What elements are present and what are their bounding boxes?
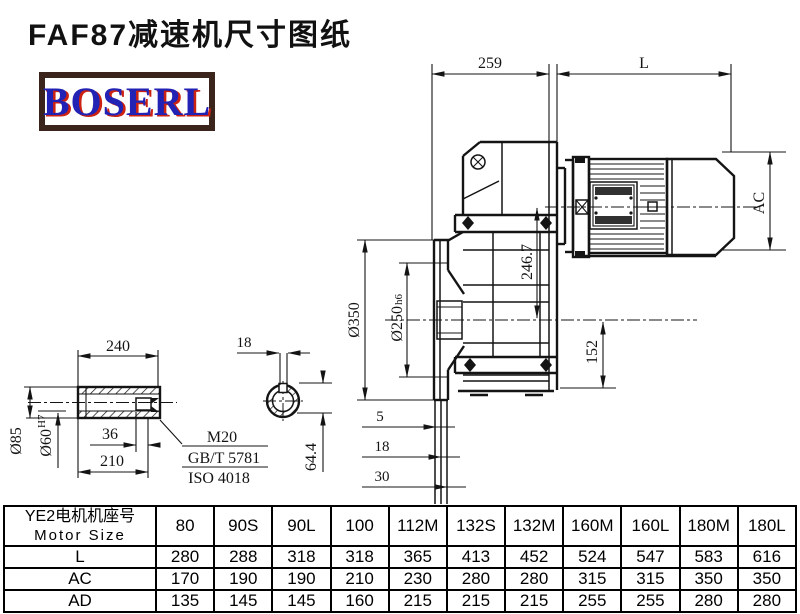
cell: 215 (505, 590, 563, 612)
dim-30: 30 (375, 469, 390, 485)
cell: 547 (621, 546, 679, 568)
cell: 145 (272, 590, 330, 612)
cell: 280 (680, 590, 738, 612)
cell: 190 (214, 568, 272, 590)
motor-size-table: YE2电机机座号 Motor Size 80 90S 90L 100 112M … (3, 505, 797, 613)
col-132M: 132M (505, 506, 563, 546)
cell: 350 (738, 568, 796, 590)
col-100: 100 (331, 506, 389, 546)
dim-18-offset: 18 (375, 439, 390, 455)
cell: 255 (563, 590, 621, 612)
label-GBT-5781: GB/T 5781 (188, 450, 260, 467)
cell: 210 (331, 568, 389, 590)
cell: 365 (389, 546, 447, 568)
col-90L: 90L (272, 506, 330, 546)
cell: 280 (738, 590, 796, 612)
gearbox-housing (455, 142, 557, 395)
dim-350: Ø350 (346, 302, 363, 338)
cell: 350 (680, 568, 738, 590)
cell: 170 (156, 568, 214, 590)
table-header-row: YE2电机机座号 Motor Size 80 90S 90L 100 112M … (4, 506, 796, 546)
col-132S: 132S (447, 506, 505, 546)
output-flange (434, 232, 464, 504)
dim-246-7: 246.7 (519, 244, 536, 280)
bolt-diamond-icon (540, 358, 552, 372)
cell: 616 (738, 546, 796, 568)
dim-85: Ø85 (8, 427, 25, 455)
col-160L: 160L (621, 506, 679, 546)
svg-text:h6: h6 (393, 294, 405, 306)
bolt-diamond-icon (464, 358, 476, 372)
col-112M: 112M (389, 506, 447, 546)
cell: 288 (214, 546, 272, 568)
cell: 280 (156, 546, 214, 568)
cell: 524 (563, 546, 621, 568)
row-label-AC: AC (4, 568, 156, 590)
table-header-motor-size: YE2电机机座号 Motor Size (4, 506, 156, 546)
dim-AC: AC (751, 192, 768, 214)
svg-text:Ø250: Ø250 (389, 306, 406, 342)
dimension-lines (30, 74, 770, 487)
dim-259: 259 (478, 55, 502, 72)
dim-210: 210 (100, 453, 124, 470)
col-180M: 180M (680, 506, 738, 546)
svg-text:H7: H7 (36, 414, 48, 428)
table-row-L: L 280 288 318 318 365 413 452 524 547 58… (4, 546, 796, 568)
col-180L: 180L (738, 506, 796, 546)
dim-240: 240 (106, 338, 130, 355)
dim-L: L (639, 55, 649, 72)
dim-18-keyway: 18 (237, 335, 252, 351)
motor-nameplate (590, 182, 637, 229)
header-en: Motor Size (5, 527, 155, 544)
label-M20: M20 (207, 429, 237, 446)
bolt-diamond-icon (540, 216, 552, 230)
cell: 318 (272, 546, 330, 568)
cell: 190 (272, 568, 330, 590)
cell: 315 (563, 568, 621, 590)
cell: 413 (447, 546, 505, 568)
col-80: 80 (156, 506, 214, 546)
cell: 452 (505, 546, 563, 568)
dim-5: 5 (376, 409, 384, 425)
cell: 280 (505, 568, 563, 590)
cell: 215 (447, 590, 505, 612)
shaft-cross-section (267, 384, 299, 418)
cell: 315 (621, 568, 679, 590)
col-160M: 160M (563, 506, 621, 546)
cell: 255 (621, 590, 679, 612)
cell: 318 (331, 546, 389, 568)
header-cn: YE2电机机座号 (5, 508, 155, 526)
drawing-page: FAF87减速机尺寸图纸 BOSERL (0, 0, 800, 614)
svg-text:Ø60: Ø60 (38, 429, 55, 457)
cell: 280 (447, 568, 505, 590)
dim-64-4: 64.4 (303, 443, 320, 471)
dim-250h6: Ø250 h6 (389, 294, 406, 342)
cell: 135 (156, 590, 214, 612)
row-label-L: L (4, 546, 156, 568)
col-90S: 90S (214, 506, 272, 546)
table-row-AD: AD 135 145 145 160 215 215 215 255 255 2… (4, 590, 796, 612)
dim-152: 152 (584, 340, 601, 364)
cell: 583 (680, 546, 738, 568)
label-ISO-4018: ISO 4018 (188, 470, 250, 487)
cell: 145 (214, 590, 272, 612)
cell: 230 (389, 568, 447, 590)
cell: 215 (389, 590, 447, 612)
row-label-AD: AD (4, 590, 156, 612)
dim-36: 36 (102, 426, 118, 443)
cell: 160 (331, 590, 389, 612)
table-row-AC: AC 170 190 190 210 230 280 280 315 315 3… (4, 568, 796, 590)
dim-60H7: Ø60 H7 (36, 414, 55, 457)
bolt-diamond-icon (462, 216, 474, 230)
